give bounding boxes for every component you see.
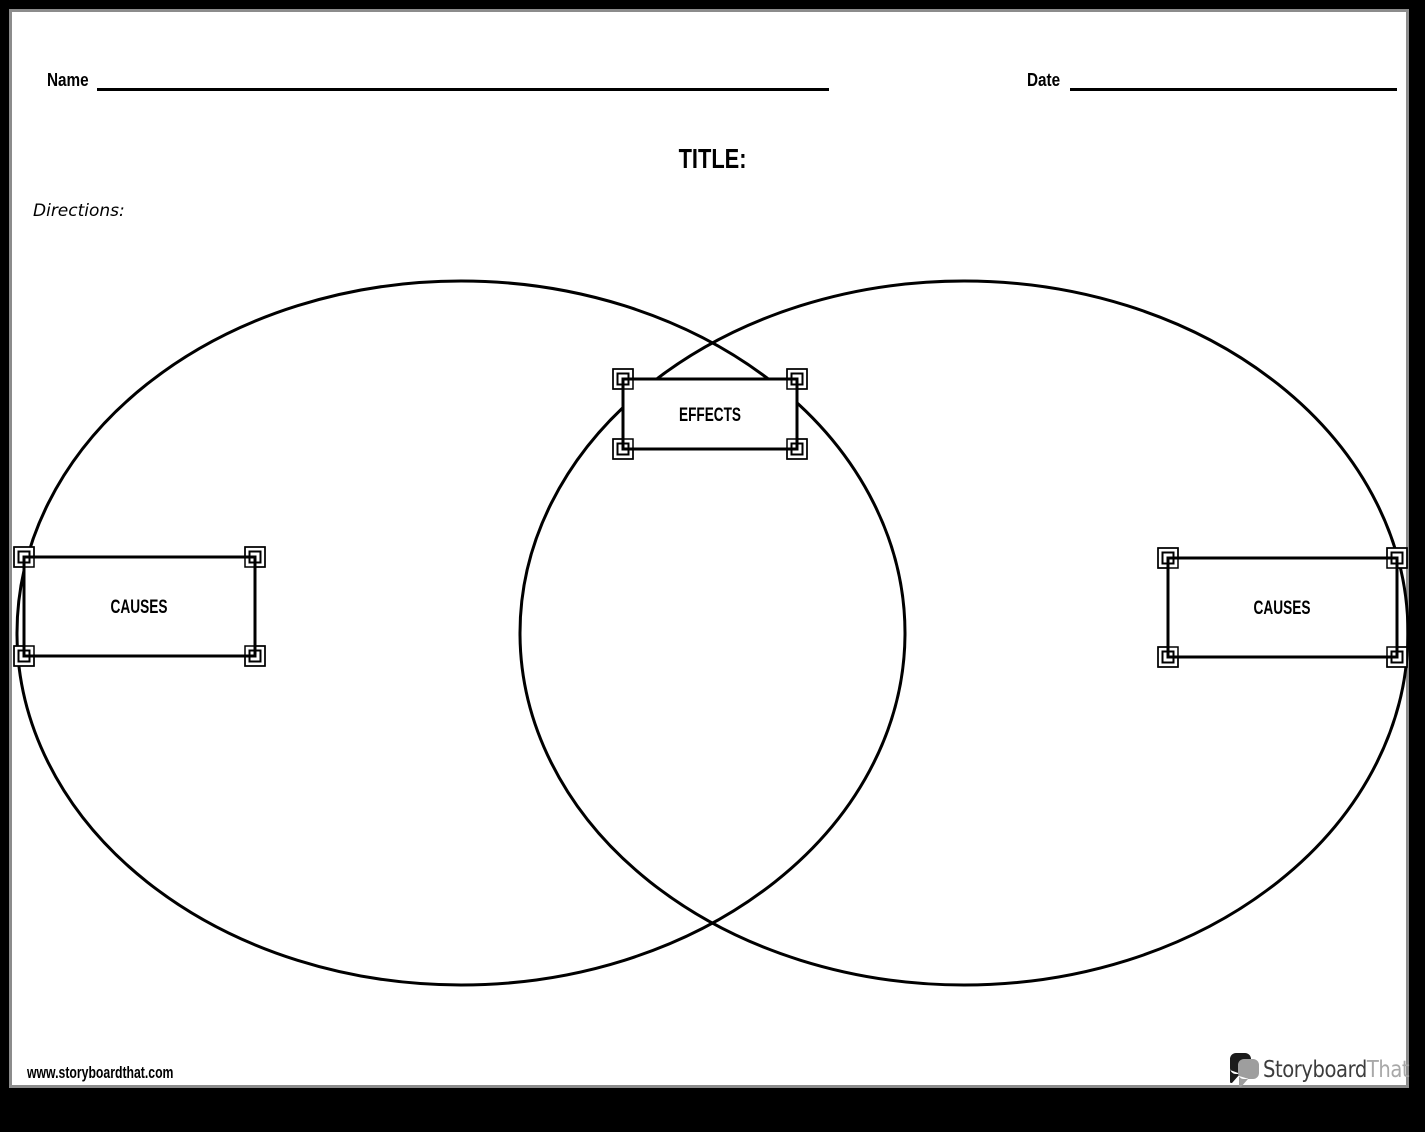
causes-right-box-label: CAUSES [1254,598,1311,619]
storyboardthat-logo[interactable]: StoryboardThat [1225,1050,1425,1090]
effects-box-label: EFFECTS [679,405,741,426]
causes-left-box-label: CAUSES [111,597,168,618]
speech-bubbles-icon [1225,1050,1261,1090]
website-url: www.storyboardthat.com [27,1064,230,1081]
logo-text: StoryboardThat [1263,1050,1409,1090]
logo-text-primary: Storyboard [1263,1057,1367,1083]
logo-text-secondary: That [1367,1057,1409,1083]
venn-diagram: EFFECTS CAUSES CAUSES [0,0,1425,1132]
website-url-text: www.storyboardthat.com [27,1064,173,1081]
